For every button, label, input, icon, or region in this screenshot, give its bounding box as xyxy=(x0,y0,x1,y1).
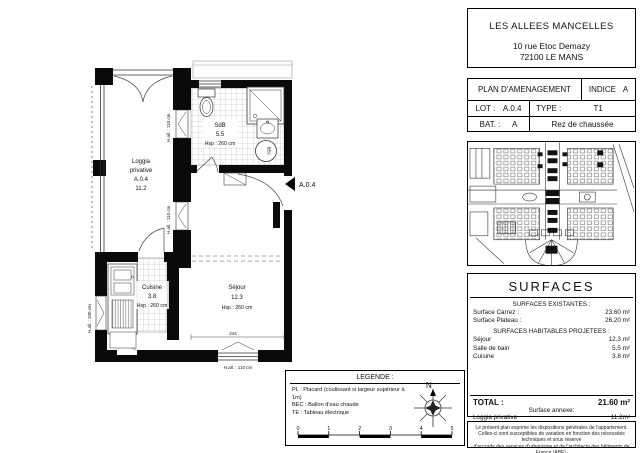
floor-cell: Rez de chaussée xyxy=(529,117,635,131)
site-map-box xyxy=(467,141,636,266)
sejour-label: Séjour xyxy=(228,285,245,291)
svg-text:0: 0 xyxy=(296,426,299,432)
project-header-box: LES ALLEES MANCELLES 10 rue Etoc Demazy … xyxy=(467,8,636,68)
surface-annexe-header: Surface annexe: xyxy=(468,407,635,414)
address-line2: 72100 LE MANS xyxy=(468,52,635,63)
surfaces-existantes-header: SURFACES EXISTANTES : xyxy=(468,298,635,309)
indice-value: A xyxy=(623,85,628,94)
bat-value: A xyxy=(512,120,517,129)
svg-text:H.all. : 100 cm: H.all. : 100 cm xyxy=(87,304,92,333)
wall-notch xyxy=(117,350,137,355)
svg-text:12.3: 12.3 xyxy=(231,295,243,301)
legend-box: LEGENDE : PL : Placard (coulissant si la… xyxy=(285,370,465,446)
svg-text:4: 4 xyxy=(420,426,423,432)
entrance-arrow-label: A.0.4 xyxy=(299,182,315,189)
svg-text:H.all. : 110 cm: H.all. : 110 cm xyxy=(166,113,171,142)
water-heater-icon: BEC xyxy=(256,141,277,162)
plan-title-cell: PLAN D'AMENAGEMENT xyxy=(468,79,581,100)
surface-row: Salle de bain 5.5 m² xyxy=(468,345,635,353)
disclaimer-line3: d'accords des services d'urbanisme et de… xyxy=(468,444,635,453)
surface-row: Cuisine 3.8 m² xyxy=(468,353,635,361)
plan-info-table: PLAN D'AMENAGEMENT INDICE A LOT : A.0.4 … xyxy=(467,78,636,132)
bat-label: BAT. : xyxy=(480,120,501,129)
svg-text:2: 2 xyxy=(358,426,361,432)
entrance-door-leaf xyxy=(273,202,280,228)
svg-text:3: 3 xyxy=(389,426,392,432)
sdb-label: SdB xyxy=(214,123,225,129)
exterior-ledge xyxy=(193,61,292,78)
dimension-line xyxy=(191,334,284,340)
cuisine-label: Cuisine xyxy=(142,285,163,291)
lot-label: LOT : xyxy=(475,104,495,113)
indice-label: INDICE xyxy=(589,85,616,94)
address-line1: 10 rue Etoc Demazy xyxy=(468,41,635,52)
plan-sheet: 244 BEC xyxy=(0,0,640,453)
washbasin-icon xyxy=(257,119,278,138)
total-value: 21.60 m² xyxy=(598,398,630,407)
surface-row: Séjour 12.3 m² xyxy=(468,336,635,344)
surfaces-total-row: TOTAL : 21.60 m² xyxy=(468,396,635,407)
type-label: TYPE : xyxy=(530,104,561,113)
svg-text:Hsp : 260 cm: Hsp : 260 cm xyxy=(222,305,253,311)
svg-text:3.8: 3.8 xyxy=(148,294,157,300)
disclaimer-box: Le présent plan exprime les dispositions… xyxy=(467,421,636,448)
bat-cell: BAT. : A xyxy=(468,117,529,131)
shower-icon xyxy=(247,87,284,124)
project-title: LES ALLEES MANCELLES xyxy=(468,9,635,32)
svg-text:Hsp : 260 cm: Hsp : 260 cm xyxy=(137,303,168,309)
loggia-label: Loggia xyxy=(132,159,151,165)
svg-text:H.all. : 110 cm: H.all. : 110 cm xyxy=(224,365,253,370)
svg-text:11.2: 11.2 xyxy=(135,186,147,192)
type-value: T1 xyxy=(561,104,635,113)
floor-plan-drawing: 244 BEC xyxy=(50,40,360,385)
surface-row: Surface Carrez : 23.60 m² xyxy=(468,309,635,317)
legend-item-te: TE : Tableau électrique xyxy=(292,410,412,418)
svg-text:privative: privative xyxy=(130,168,153,174)
surfaces-title: SURFACES xyxy=(468,274,635,297)
svg-text:Hsp : 260 cm: Hsp : 260 cm xyxy=(205,141,236,147)
north-compass-icon: N xyxy=(410,379,456,429)
svg-text:A.0.4: A.0.4 xyxy=(134,177,149,183)
surfaces-projetees-header: SURFACES HABITABLES PROJETEES : xyxy=(468,325,635,336)
lot-value: A.0.4 xyxy=(503,104,522,113)
total-label: TOTAL : xyxy=(473,398,504,407)
site-map xyxy=(468,142,635,265)
svg-text:1: 1 xyxy=(327,426,330,432)
disclaimer-line2: Celles-ci sont susceptibles de variation… xyxy=(468,431,635,443)
ceiling-dashed-lines xyxy=(192,256,283,261)
type-cell: TYPE : T1 xyxy=(529,101,635,116)
svg-text:5: 5 xyxy=(450,426,453,432)
kitchen-counter xyxy=(108,264,137,348)
surfaces-box: SURFACES SURFACES EXISTANTES : Surface C… xyxy=(467,273,636,417)
legend-item-pl: PL : Placard (coulissant si largeur supé… xyxy=(292,387,412,402)
entrance-arrow-icon: A.0.4 xyxy=(285,177,315,191)
lot-cell: LOT : A.0.4 xyxy=(468,101,529,116)
legend-item-bec: BEC : Ballon d'eau chaude xyxy=(292,402,412,410)
indice-cell: INDICE A xyxy=(581,79,635,100)
svg-text:BEC: BEC xyxy=(267,147,272,156)
surface-row: Surface Plateau : 26.20 m² xyxy=(468,317,635,325)
scale-bar: 0 1 2 3 4 5 xyxy=(294,425,456,441)
dimension-244: 244 xyxy=(229,331,237,336)
svg-text:H.all. : 110 cm: H.all. : 110 cm xyxy=(166,205,171,234)
svg-text:5.5: 5.5 xyxy=(216,132,225,138)
north-label: N xyxy=(426,381,432,390)
